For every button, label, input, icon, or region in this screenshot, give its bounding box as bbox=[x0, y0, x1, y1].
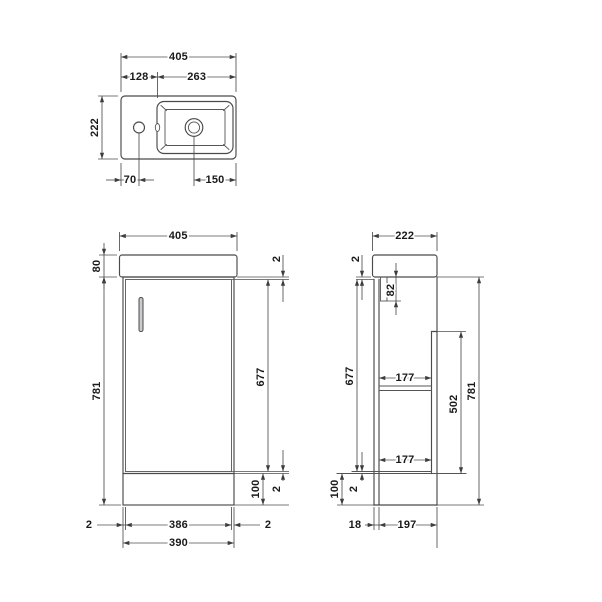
dim-side-cabinet-height: 781 bbox=[466, 382, 478, 401]
side-view: 222 2 677 82 177 177 502 781 100 2 18 bbox=[329, 230, 484, 548]
dim-front-door-height: 677 bbox=[255, 368, 267, 387]
dim-plan-deck-width: 128 bbox=[130, 71, 149, 83]
dim-front-plinth-height: 100 bbox=[250, 480, 262, 499]
dim-front-gap-left: 2 bbox=[86, 519, 92, 531]
dim-side-bottom-gap: 2 bbox=[348, 486, 360, 492]
dim-plan-overall-depth: 222 bbox=[89, 118, 101, 137]
technical-drawing-canvas: 405 128 263 222 70 150 4 bbox=[0, 0, 602, 602]
front-ext-right bbox=[232, 277, 290, 505]
dim-plan-overall-width: 405 bbox=[169, 51, 188, 63]
dim-front-bottom-gap: 2 bbox=[271, 486, 283, 492]
dim-side-basin-recess: 82 bbox=[385, 284, 397, 297]
plan-bowl-corner-slopes bbox=[161, 106, 229, 150]
dim-side-carcass-depth: 197 bbox=[398, 519, 417, 531]
front-view: 405 80 781 2 677 100 2 2 386 2 390 bbox=[86, 230, 289, 549]
dim-front-gap-right: 2 bbox=[265, 519, 271, 531]
plan-waste-inner bbox=[188, 122, 199, 133]
plan-basin-top-outline bbox=[121, 96, 236, 159]
side-middle-shelf bbox=[379, 386, 432, 391]
plan-bowl-inner bbox=[165, 110, 225, 146]
dim-front-door-width: 386 bbox=[169, 519, 188, 531]
dim-front-overall-width: 405 bbox=[169, 230, 188, 242]
dim-side-shelf-depth-upper: 177 bbox=[396, 372, 415, 384]
plan-waste-outer bbox=[185, 119, 203, 137]
dim-side-overall-depth: 222 bbox=[395, 230, 414, 242]
dim-front-basin-height: 80 bbox=[91, 260, 103, 273]
dim-side-shelf-depth-lower: 177 bbox=[396, 454, 415, 466]
side-basin-outline bbox=[373, 255, 438, 277]
dim-plan-bowl-width: 263 bbox=[187, 71, 206, 83]
technical-drawing-page: 405 128 263 222 70 150 4 bbox=[0, 0, 602, 602]
side-ext-left bbox=[337, 277, 374, 505]
plan-tap-hole bbox=[134, 122, 145, 133]
dim-side-plinth-height: 100 bbox=[329, 480, 341, 499]
dim-side-top-gap: 2 bbox=[350, 256, 362, 262]
dim-front-cabinet-width: 390 bbox=[169, 537, 188, 549]
plan-view: 405 128 263 222 70 150 bbox=[89, 51, 236, 186]
plan-extension-lines-left bbox=[98, 96, 118, 159]
dim-plan-tap-offset: 70 bbox=[124, 174, 137, 186]
dim-side-back-panel-height: 502 bbox=[448, 395, 460, 414]
plan-overflow-slot bbox=[155, 124, 159, 132]
dim-front-top-gap: 2 bbox=[271, 256, 283, 262]
front-basin-outline bbox=[120, 255, 238, 277]
dim-plan-waste-offset: 150 bbox=[206, 174, 225, 186]
side-back-panel bbox=[432, 332, 438, 474]
dim-side-door-height: 677 bbox=[344, 367, 356, 386]
front-door-handle bbox=[139, 298, 143, 332]
dim-side-door-thickness: 18 bbox=[349, 519, 362, 531]
front-ext-left bbox=[99, 255, 121, 505]
dim-front-cabinet-height: 781 bbox=[91, 382, 103, 401]
